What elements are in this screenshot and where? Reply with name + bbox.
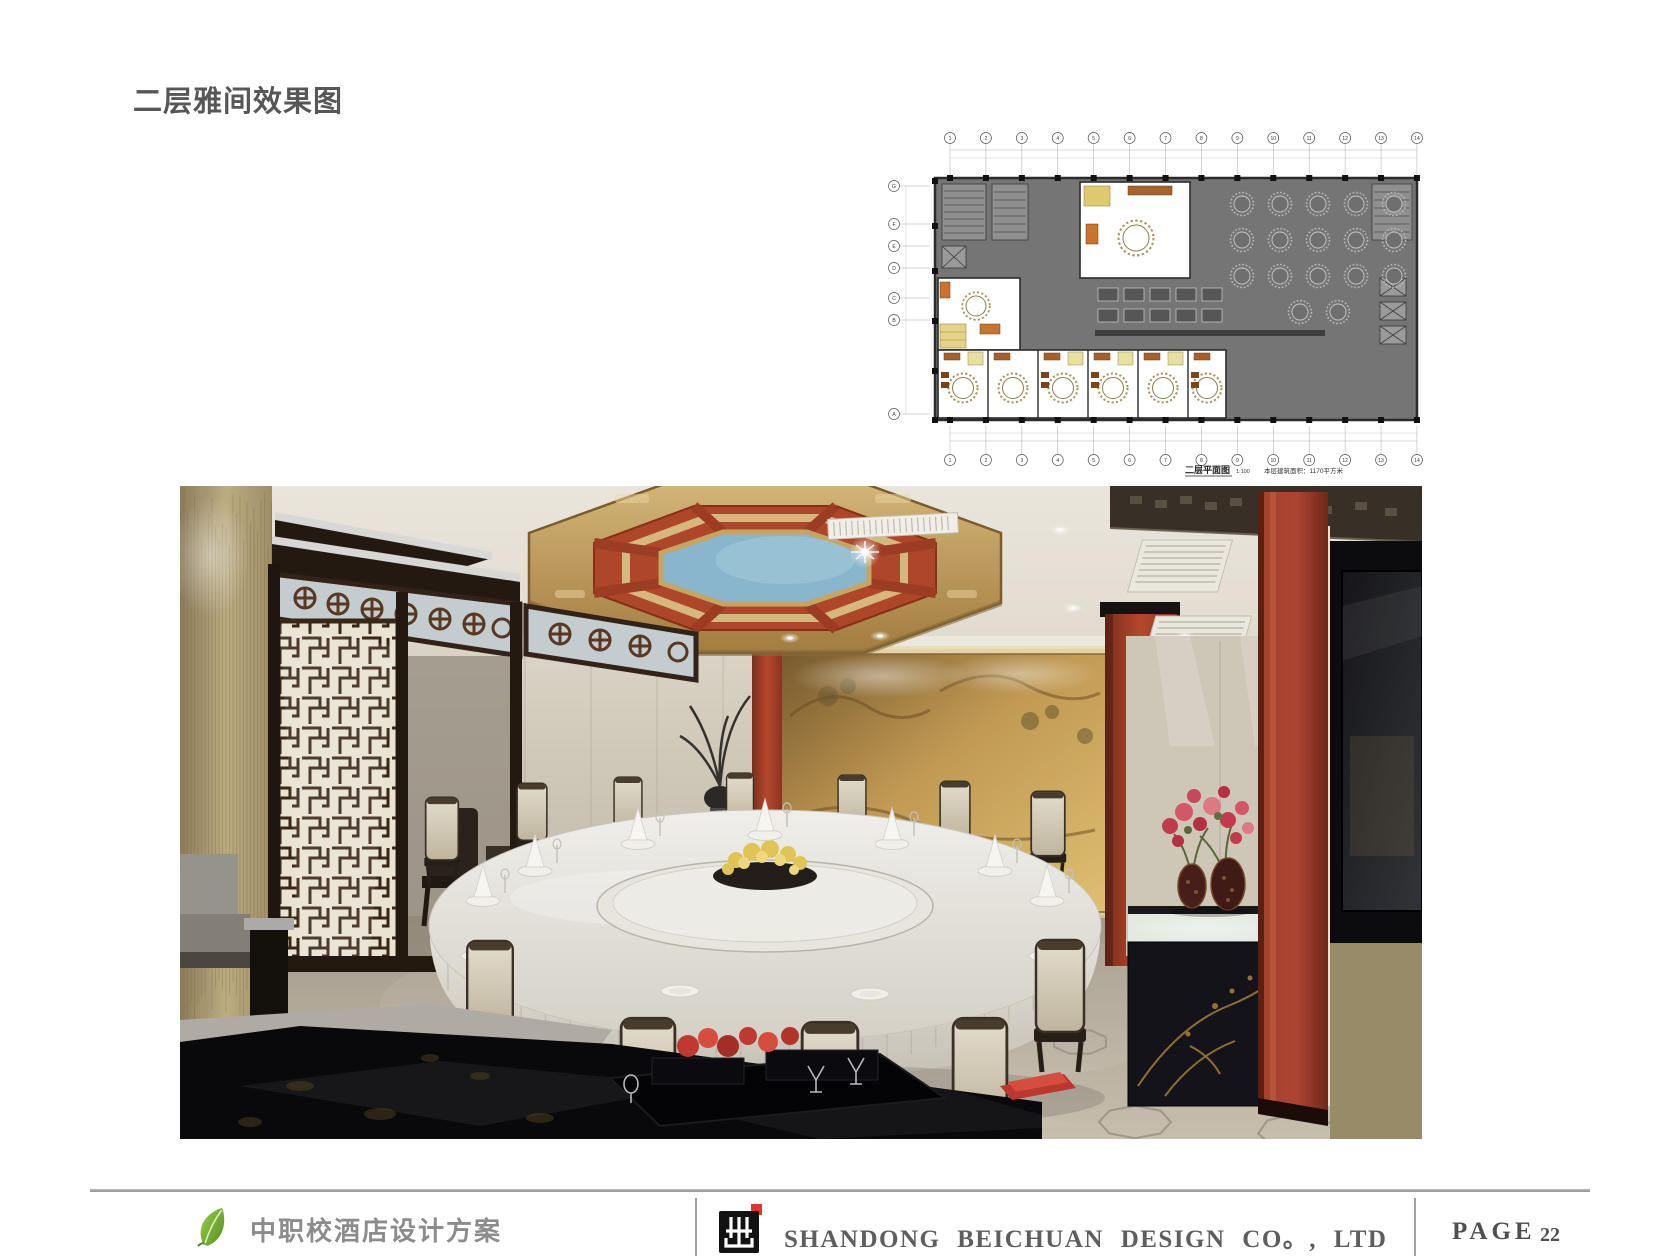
footer-divider-1 [695, 1198, 697, 1256]
svg-text:11: 11 [1307, 136, 1312, 142]
svg-text:3: 3 [1020, 136, 1023, 142]
plan-caption-scale: 1:100 [1236, 469, 1250, 475]
svg-text:8: 8 [1200, 458, 1203, 464]
leaf-logo-icon [192, 1206, 236, 1248]
svg-text:10: 10 [1270, 458, 1276, 464]
svg-text:2: 2 [985, 136, 988, 142]
svg-text:1: 1 [949, 458, 952, 464]
svg-text:5: 5 [1092, 458, 1095, 464]
plan-caption: 二层平面图 1:100 本层建筑面积：1170平方米 [1185, 465, 1343, 476]
svg-text:12: 12 [1342, 458, 1348, 464]
floor-plan-drawing: 1234567891011121314 1234567891011121314 … [880, 128, 1432, 480]
svg-text:14: 14 [1414, 136, 1420, 142]
footer-page-label: PAGE [1452, 1218, 1536, 1246]
plan-grid-bottom: 1234567891011121314 [945, 426, 1423, 466]
svg-text:9: 9 [1236, 458, 1239, 464]
plan-grid-left: GFEDCBA [889, 181, 931, 420]
svg-text:D: D [892, 266, 896, 272]
company-seal-logo [718, 1204, 764, 1254]
svg-text:10: 10 [1270, 136, 1276, 142]
footer-project-name: 中职校酒店设计方案 [250, 1211, 502, 1248]
footer-divider-rule [90, 1189, 1590, 1192]
footer-page-number: 22 [1540, 1224, 1560, 1247]
svg-text:7: 7 [1164, 136, 1167, 142]
plan-room-left [938, 278, 1020, 350]
plan-room-top [1080, 182, 1190, 278]
svg-text:8: 8 [1200, 136, 1203, 142]
plan-caption-title: 二层平面图 [1185, 465, 1230, 475]
svg-text:G: G [892, 184, 896, 190]
svg-text:14: 14 [1414, 458, 1420, 464]
svg-text:C: C [892, 296, 896, 302]
page-title: 二层雅间效果图 [133, 78, 343, 120]
svg-text:4: 4 [1056, 136, 1059, 142]
svg-text:6: 6 [1128, 458, 1131, 464]
svg-text:4: 4 [1056, 458, 1059, 464]
footer-divider-2 [1414, 1198, 1416, 1256]
footer-company-name: SHANDONG BEICHUAN DESIGN CO。, LTD [784, 1219, 1387, 1255]
svg-text:F: F [892, 222, 895, 228]
svg-text:11: 11 [1307, 458, 1312, 464]
svg-text:9: 9 [1236, 136, 1239, 142]
floor-plan-image: 1234567891011121314 1234567891011121314 … [880, 128, 1432, 480]
plan-private-rooms [938, 350, 1226, 418]
svg-text:13: 13 [1378, 458, 1384, 464]
plan-caption-area: 本层建筑面积：1170平方米 [1264, 466, 1343, 475]
svg-text:1: 1 [949, 136, 952, 142]
svg-text:12: 12 [1342, 136, 1348, 142]
svg-text:6: 6 [1128, 136, 1131, 142]
svg-text:7: 7 [1164, 458, 1167, 464]
interior-rendering-photo [180, 486, 1422, 1139]
svg-text:3: 3 [1020, 458, 1023, 464]
plan-grid-top: 1234567891011121314 [945, 133, 1423, 177]
svg-text:2: 2 [985, 458, 988, 464]
svg-text:5: 5 [1092, 136, 1095, 142]
svg-text:13: 13 [1378, 136, 1384, 142]
